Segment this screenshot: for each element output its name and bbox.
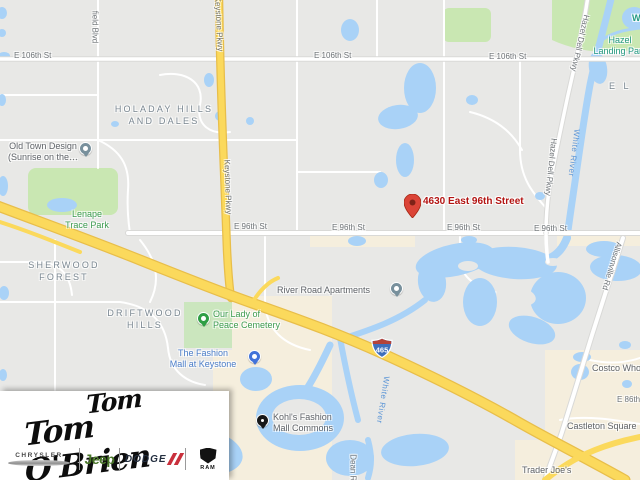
neighborhood-line: HILLS [107,319,182,331]
poi-line: Mall Commons [273,423,333,434]
poi-line: Trace Park [65,220,109,231]
street-label-e106th: E 106th St [14,51,51,60]
neighborhood-line: HOLADAY HILLS [115,103,213,115]
neighborhood-line: AND DALES [115,115,213,127]
poi-line: Lenape [65,209,109,220]
poi-line: Mall at Keystone [160,359,246,370]
poi-line: Kohl's Fashion [273,412,333,423]
address-marker-icon[interactable] [404,194,421,218]
neighborhood-label-holaday-hills: HOLADAY HILLS AND DALES [115,103,213,127]
poi-line: (Sunrise on the… [5,152,81,163]
poi-label-old-town-design[interactable]: Old Town Design (Sunrise on the… [5,141,81,162]
dodge-logo: DODGE [125,453,181,465]
poi-label-hazel-landing-park[interactable]: Hazel Landing Park [585,35,640,56]
poi-label-lenape-trace-park[interactable]: Lenape Trace Park [65,209,109,230]
poi-label-costco[interactable]: Costco Wholesale [592,363,640,374]
street-label-e96th: E 96th St [534,224,567,233]
street-label-dean-rd: Dean Rd [349,454,358,480]
dealer-logo: Tom Tom O'Brien CHRYSLER Jeep DODGE RAM [0,391,229,480]
poi-line: Hazel [585,35,640,46]
address-marker-label[interactable]: 4630 East 96th Street [423,196,524,207]
poi-line: Our Lady of [213,309,280,320]
kohls-logo-pin-icon[interactable] [256,414,269,427]
chrysler-wing-icon [8,460,70,466]
poi-label-our-lady-of-peace-cemetery[interactable]: Our Lady of Peace Cemetery [213,309,280,330]
street-label-field-blvd: field Blvd [91,11,100,43]
poi-line: Old Town Design [5,141,81,152]
place-pin-icon[interactable] [390,282,403,295]
street-label-e106th: E 106th St [489,52,526,61]
street-label-keystone-pkwy: Keystone Pkwy [223,160,234,215]
neighborhood-label-sherwood-forest: SHERWOOD FOREST [28,259,99,283]
poi-label-fashion-mall-at-keystone[interactable]: The Fashion Mall at Keystone [160,348,246,369]
brand-logo-row: CHRYSLER Jeep DODGE RAM [4,444,225,474]
poi-label-trader-joes[interactable]: Trader Joe's [522,465,571,476]
dodge-label: DODGE [125,454,167,465]
street-label-e86th: E 86th St [617,395,640,404]
neighborhood-line: FOREST [28,271,99,283]
poi-line: Peace Cemetery [213,320,280,331]
ram-shield-icon [200,448,217,464]
cemetery-pin-icon[interactable] [197,312,210,325]
chrysler-logo: CHRYSLER [4,452,74,466]
neighborhood-line: DRIFTWOOD [107,307,182,319]
street-label-e96th: E 96th St [332,223,365,232]
street-label-e106th: E 106th St [314,51,351,60]
poi-label-river-road-apartments[interactable]: River Road Apartments [277,285,370,296]
neighborhood-line: SHERWOOD [28,259,99,271]
poi-line: The Fashion [160,348,246,359]
street-label-e96th: E 96th St [447,223,480,232]
chrysler-label: CHRYSLER [15,452,63,459]
divider [185,448,186,470]
ram-logo: RAM [191,448,225,471]
divider [79,448,80,470]
divider [119,448,120,470]
neighborhood-label-driftwood-hills: DRIFTWOOD HILLS [107,307,182,331]
poi-label-castleton-square[interactable]: Castleton Square [567,421,637,432]
ram-label: RAM [200,465,216,471]
street-label-e96th: E 96th St [234,222,267,231]
poi-label-partial-w: W [632,13,640,24]
poi-line: Landing Park [585,46,640,57]
poi-label-kohls-fashion-mall-commons[interactable]: Kohl's Fashion Mall Commons [273,412,333,433]
jeep-logo: Jeep [84,451,114,467]
svg-text:465: 465 [376,346,389,355]
neighborhood-label-partial: E L [609,80,632,92]
shopping-pin-icon[interactable] [248,350,261,363]
map-canvas[interactable]: 465 E 106th St E 106th St E 106th St E 9… [0,0,640,480]
